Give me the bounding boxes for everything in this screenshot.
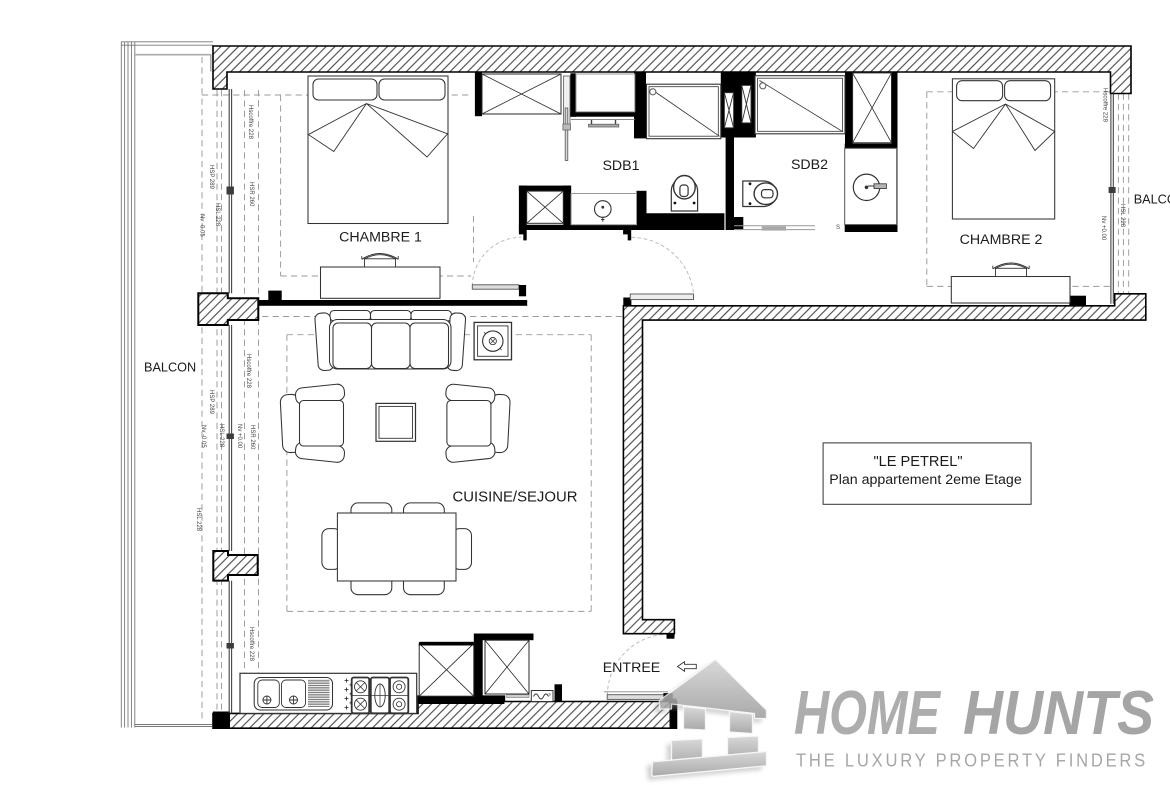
svg-text:HSL 228: HSL 228 — [218, 424, 224, 448]
svg-text:Nv +0.00: Nv +0.00 — [236, 424, 242, 449]
svg-text:Hscoffre 228: Hscoffre 228 — [247, 105, 253, 140]
svg-text:CUISINE/SEJOUR: CUISINE/SEJOUR — [453, 490, 578, 506]
svg-text:Hscoffre 228: Hscoffre 228 — [248, 627, 254, 662]
svg-text:HSP 289: HSP 289 — [208, 165, 214, 190]
svg-text:Plan appartement 2eme Etage: Plan appartement 2eme Etage — [829, 472, 1022, 488]
svg-text:BALCON: BALCON — [1134, 193, 1170, 207]
svg-text:CHAMBRE 2: CHAMBRE 2 — [960, 232, 1043, 248]
svg-text:Hscoffre 228: Hscoffre 228 — [245, 354, 251, 389]
svg-text:SDB2: SDB2 — [791, 157, 828, 173]
svg-text:Hscoffre 228: Hscoffre 228 — [1102, 88, 1108, 123]
svg-text:ENTREE: ENTREE — [603, 660, 661, 676]
svg-text:HSP 289: HSP 289 — [208, 390, 214, 415]
svg-text:Nv -0.05: Nv -0.05 — [200, 425, 206, 448]
svg-text:HSL 228: HSL 228 — [1119, 204, 1125, 228]
svg-text:CHAMBRE 1: CHAMBRE 1 — [339, 230, 422, 246]
svg-text:BALCON: BALCON — [144, 361, 196, 375]
svg-text:HSL 228: HSL 228 — [195, 508, 201, 532]
svg-text:THE LUXURY PROPERTY FINDERS: THE LUXURY PROPERTY FINDERS — [796, 751, 1148, 771]
svg-text:S: S — [836, 225, 840, 231]
svg-text:HUNTS: HUNTS — [963, 679, 1154, 748]
svg-text:Nv -0.05: Nv -0.05 — [199, 214, 205, 237]
svg-text:HSR 260: HSR 260 — [249, 425, 255, 450]
svg-text:SDB1: SDB1 — [602, 158, 639, 174]
svg-text:HSR 260: HSR 260 — [248, 182, 254, 207]
svg-text:Nv +0.00: Nv +0.00 — [1100, 216, 1106, 241]
svg-text:"LE PETREL": "LE PETREL" — [873, 454, 962, 470]
svg-text:HOME: HOME — [794, 679, 941, 748]
svg-text:HSL 228: HSL 228 — [214, 203, 220, 227]
